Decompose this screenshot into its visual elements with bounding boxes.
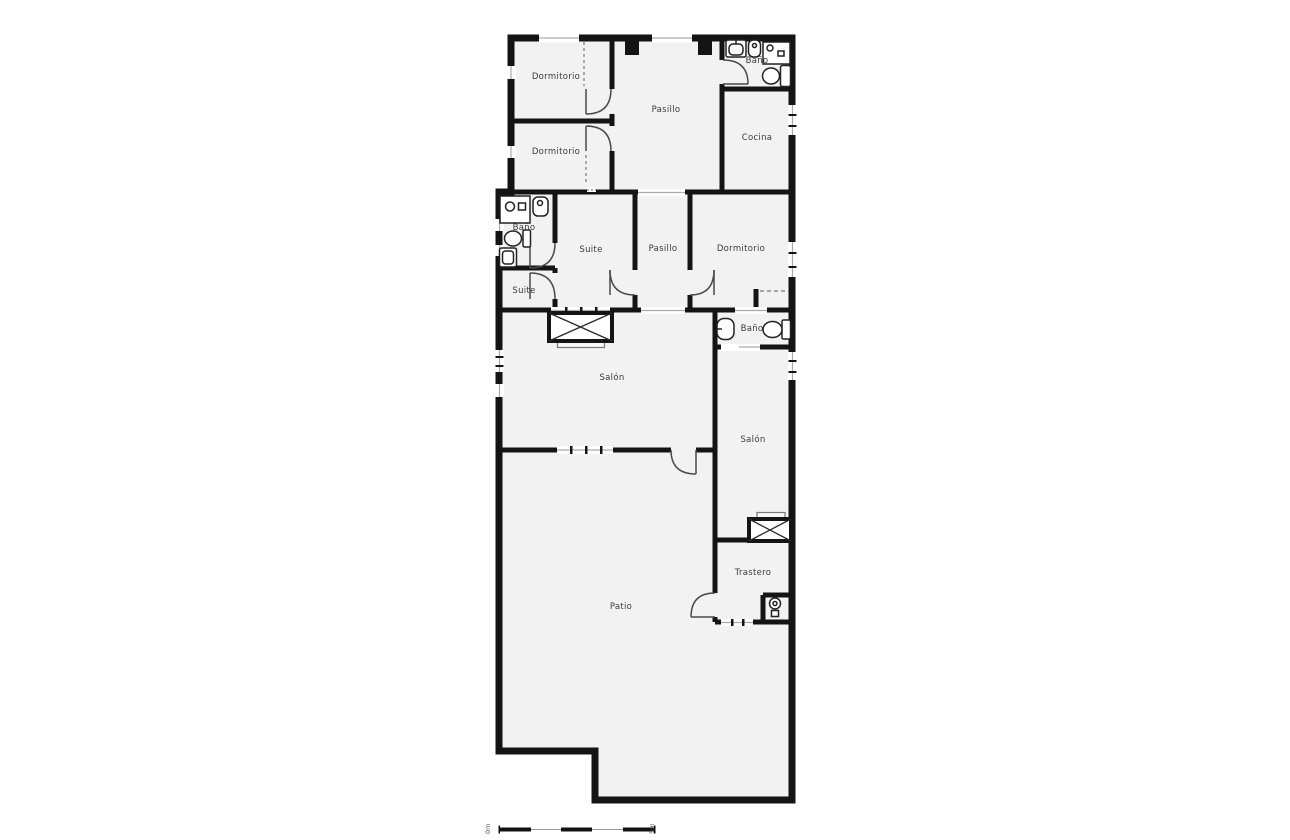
sink-icon — [717, 319, 734, 340]
toilet-icon — [505, 230, 531, 247]
sink-icon — [726, 40, 746, 57]
sink-icon — [533, 197, 548, 216]
scale-bar — [499, 826, 656, 834]
shower-icon — [500, 196, 530, 223]
floor-plan-svg — [0, 0, 1290, 840]
stairs-icon — [549, 313, 612, 348]
building-outline — [499, 38, 792, 800]
toilet-icon — [763, 320, 791, 339]
scale-end-label: 5m — [648, 824, 656, 834]
sink-icon — [500, 248, 517, 267]
bidet-icon — [749, 40, 761, 57]
shower-icon — [763, 42, 790, 64]
scale-start-label: 0m — [484, 824, 492, 834]
floor-plan: Dormitorio Dormitorio Pasillo Baño Cocin… — [0, 0, 1290, 840]
washbasin-icon — [770, 598, 781, 617]
